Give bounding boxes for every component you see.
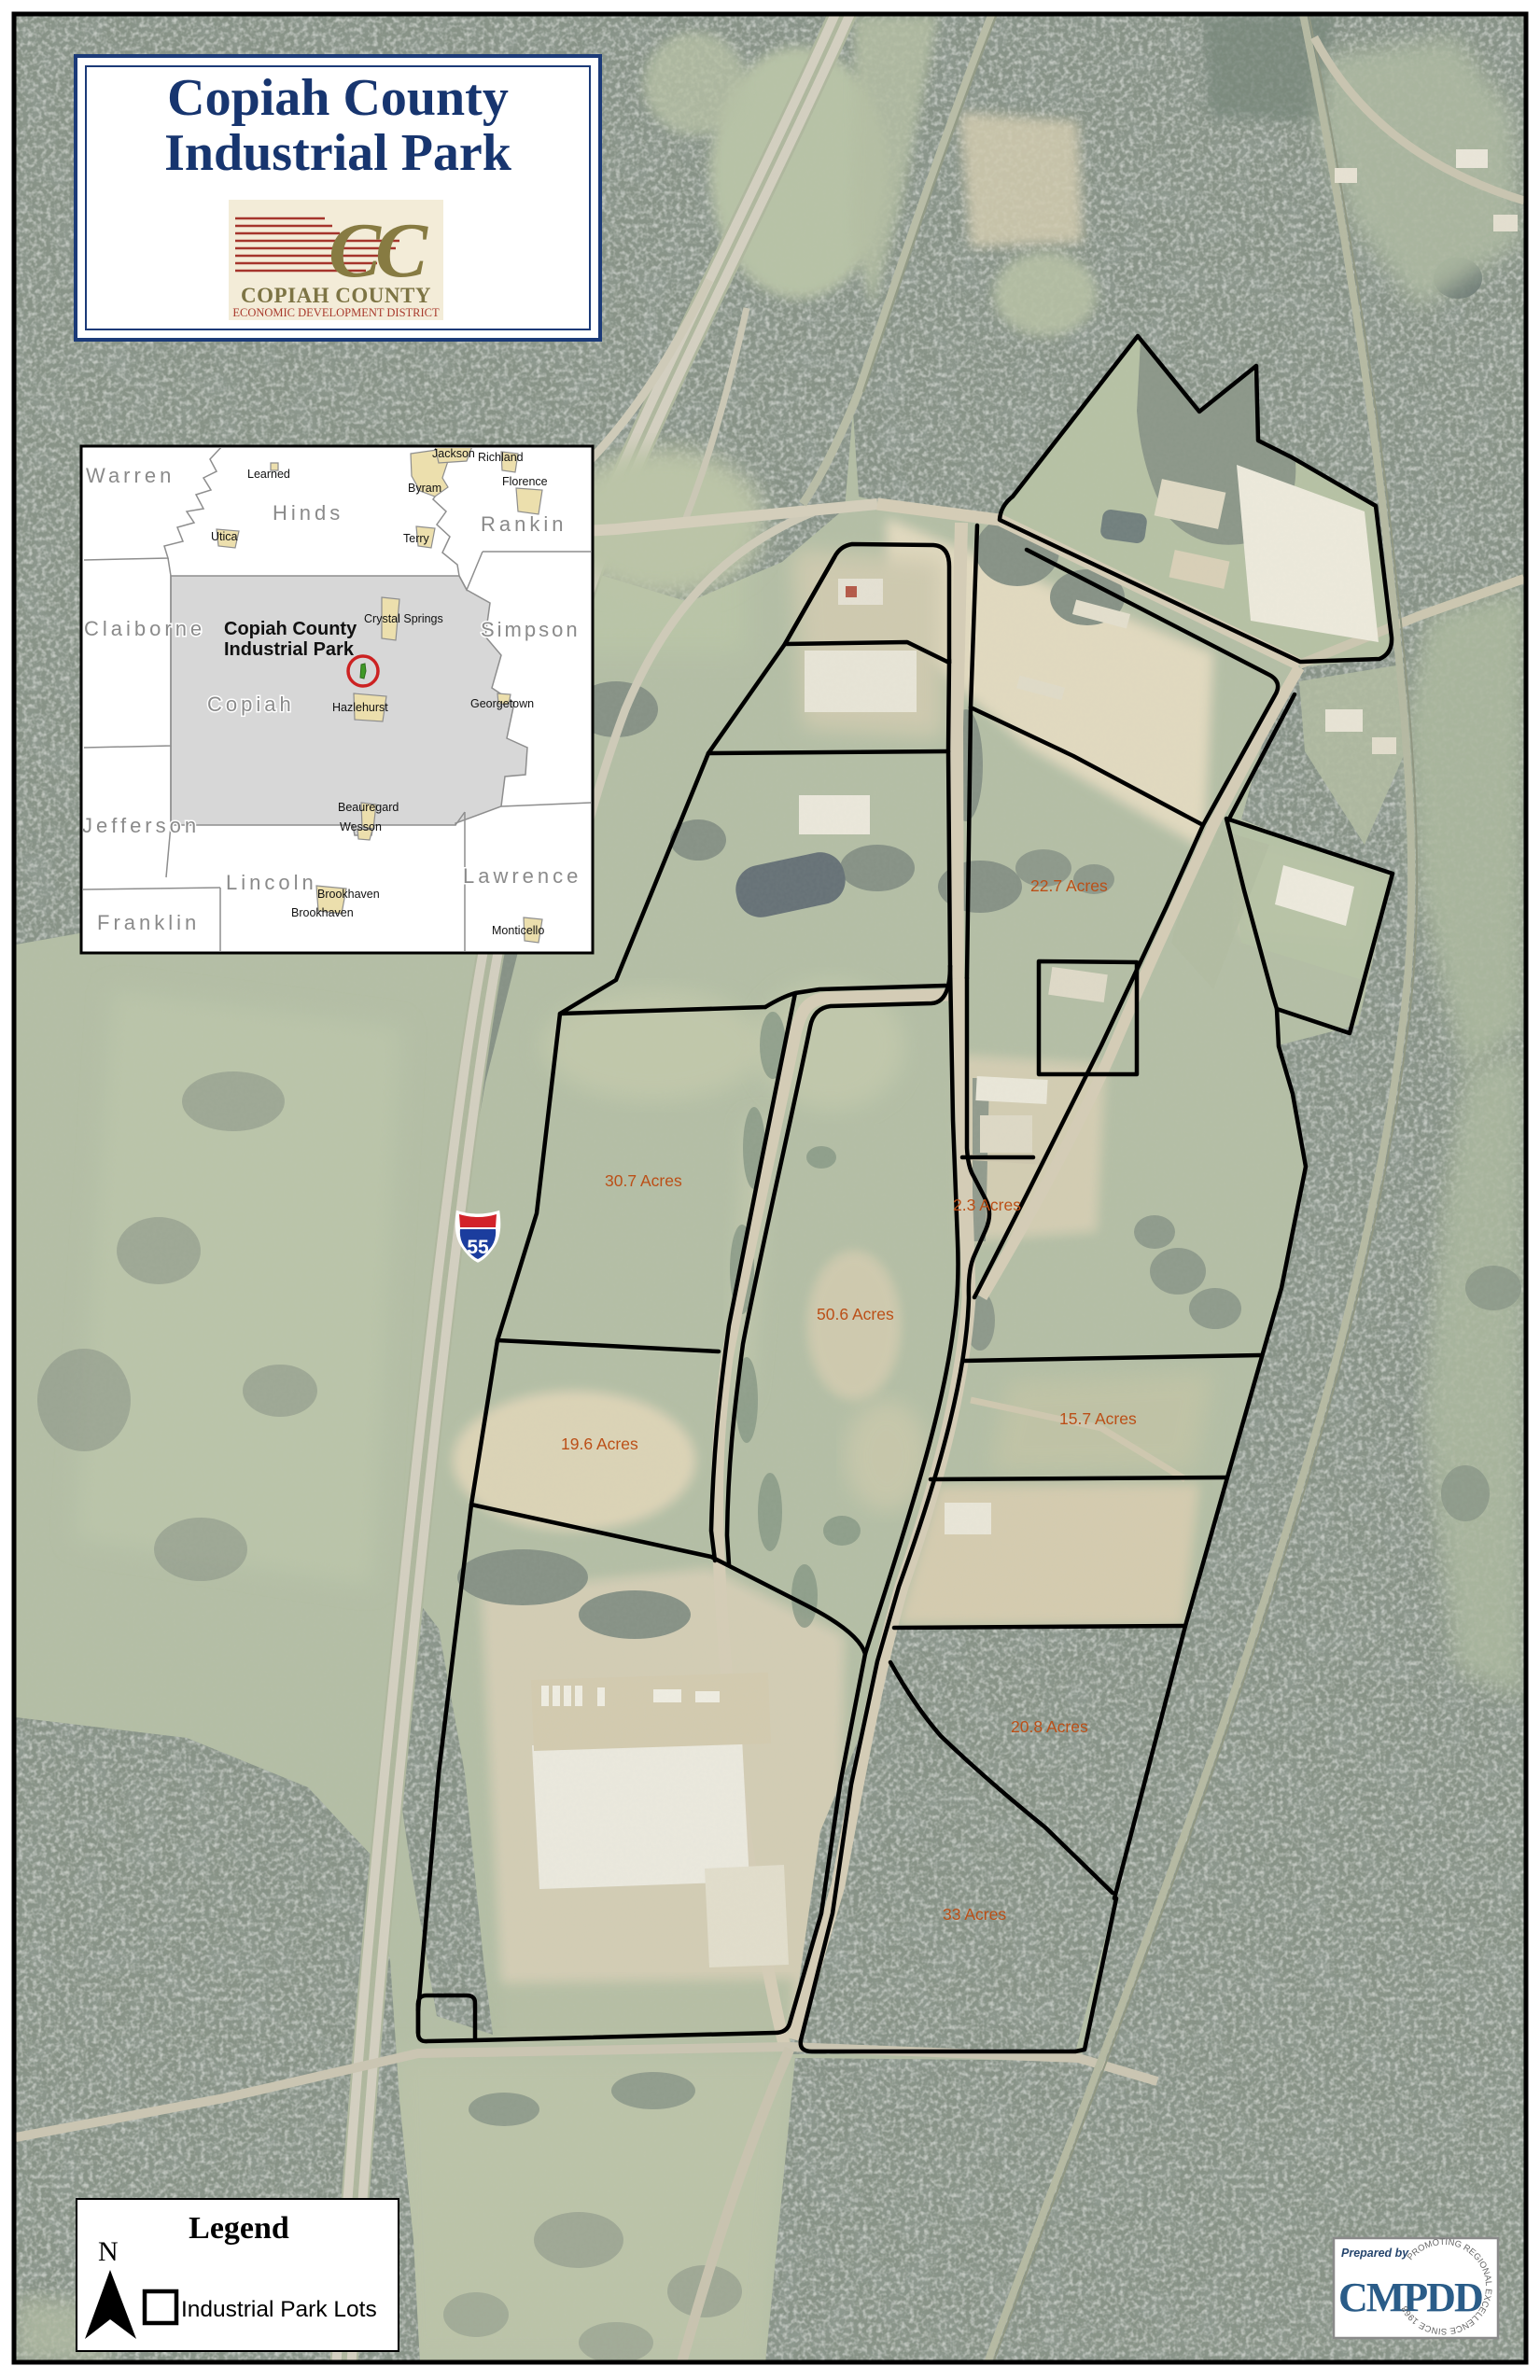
svg-text:22.7 Acres: 22.7 Acres [1030,876,1108,895]
svg-text:Industrial Park: Industrial Park [164,124,512,182]
svg-text:Warren: Warren [86,464,175,487]
svg-text:COPIAH COUNTY: COPIAH COUNTY [241,284,431,307]
svg-text:19.6 Acres: 19.6 Acres [561,1435,638,1453]
svg-text:Lawrence: Lawrence [463,864,581,888]
svg-text:Copiah County: Copiah County [167,69,509,127]
svg-text:Industrial Park Lots: Industrial Park Lots [181,2297,377,2322]
svg-text:Crystal Springs: Crystal Springs [364,612,443,625]
svg-text:Prepared by: Prepared by [1341,2247,1409,2260]
svg-text:CC: CC [329,207,428,294]
svg-text:33 Acres: 33 Acres [943,1905,1006,1924]
svg-text:Legend: Legend [189,2211,289,2246]
svg-text:ECONOMIC DEVELOPMENT DISTRICT: ECONOMIC DEVELOPMENT DISTRICT [232,306,440,319]
svg-text:Simpson: Simpson [481,618,581,641]
svg-text:Lincoln: Lincoln [226,871,317,894]
svg-text:Richland: Richland [478,451,524,464]
svg-text:Beauregard: Beauregard [338,801,399,814]
svg-text:Monticello: Monticello [492,924,544,937]
svg-text:Brookhaven: Brookhaven [291,906,354,919]
svg-text:2.3 Acres: 2.3 Acres [953,1196,1021,1214]
svg-text:Jackson: Jackson [432,447,475,460]
svg-text:Byram: Byram [408,482,441,495]
svg-text:N: N [98,2236,119,2267]
svg-text:Florence: Florence [502,475,548,488]
svg-text:Learned: Learned [247,468,290,481]
svg-text:Terry: Terry [403,532,430,545]
svg-text:Copiah County: Copiah County [224,619,357,639]
svg-text:Brookhaven: Brookhaven [317,888,380,901]
svg-text:Jefferson: Jefferson [82,814,200,837]
svg-text:Industrial Park: Industrial Park [224,639,355,660]
svg-text:20.8 Acres: 20.8 Acres [1011,1717,1088,1736]
svg-text:Copiah: Copiah [207,693,295,716]
svg-text:55: 55 [467,1237,489,1258]
svg-text:Claiborne: Claiborne [84,617,205,640]
svg-text:Rankin: Rankin [481,512,567,536]
svg-text:50.6 Acres: 50.6 Acres [817,1305,894,1323]
svg-text:Hinds: Hinds [273,501,343,525]
svg-text:Georgetown: Georgetown [470,697,534,710]
svg-text:Wesson: Wesson [340,820,382,833]
svg-text:30.7 Acres: 30.7 Acres [605,1171,682,1190]
svg-text:Utica: Utica [211,530,238,543]
svg-text:Hazlehurst: Hazlehurst [332,701,388,714]
svg-text:15.7 Acres: 15.7 Acres [1059,1409,1137,1428]
svg-text:Franklin: Franklin [97,911,200,934]
